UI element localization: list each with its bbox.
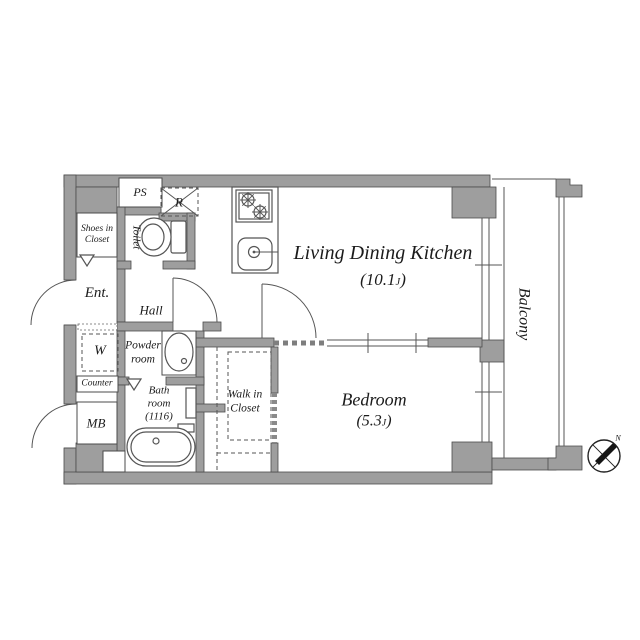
ldk-area-suffix: ) (400, 270, 406, 289)
label-washer: W (94, 344, 106, 361)
sliding-door-ldk-bedroom (274, 333, 428, 353)
wic-line2: Closet (228, 402, 262, 416)
room-label-powder: Powderroom (125, 339, 161, 366)
room-label-balcony: Balcony (514, 288, 533, 340)
room-label-walk-in-closet: Walk inCloset (228, 388, 262, 415)
shoes-closet-step-marker (80, 255, 94, 266)
bath-line1: Bath (145, 385, 173, 398)
powder-sink-icon (165, 333, 193, 371)
window-ldk (475, 218, 502, 340)
floorplan-canvas: Living Dining Kitchen (10.1J) Bedroom (5… (0, 0, 640, 640)
bedroom-area-prefix: (5.3 (356, 413, 381, 430)
meter-box-door-arc (32, 404, 76, 448)
shoes-closet-line2: Closet (81, 235, 113, 246)
label-pipe-space: PS (133, 185, 146, 199)
kitchen-stove-icon (236, 190, 272, 222)
entrance-sill (78, 324, 117, 330)
powder-line1: Powder (125, 339, 161, 353)
room-label-bedroom: Bedroom (341, 389, 406, 410)
wic-line1: Walk in (228, 388, 262, 402)
label-counter: Counter (81, 378, 112, 389)
bath-line3: (1116) (145, 410, 173, 423)
room-area-ldk: (10.1J) (360, 270, 406, 290)
window-bedroom (475, 362, 502, 442)
entrance-door-arc (31, 280, 76, 325)
room-label-bath: Bathroom(1116) (145, 385, 173, 424)
floorplan-drawing (0, 0, 640, 640)
label-refrigerator: R (175, 194, 183, 209)
room-label-shoes-in-closet: Shoes inCloset (81, 224, 113, 246)
powder-room-door-arc (173, 278, 217, 322)
label-meter-box: MB (87, 415, 106, 430)
bath-step-niche (103, 451, 125, 472)
compass-north-label: N (615, 433, 620, 442)
shoes-closet-line1: Shoes in (81, 224, 113, 235)
kitchen-sink-icon (238, 238, 278, 270)
ldk-area-prefix: (10.1 (360, 270, 395, 289)
ldk-door-arc (262, 284, 316, 338)
bedroom-area-suffix: ) (386, 413, 391, 430)
room-label-ldk: Living Dining Kitchen (294, 242, 473, 266)
room-area-bedroom: (5.3J) (356, 413, 391, 432)
room-label-hall: Hall (139, 302, 162, 317)
compass-icon (588, 440, 620, 472)
room-label-entrance: Ent. (85, 285, 110, 303)
room-label-toilet: Toilet (130, 225, 143, 250)
bath-line2: room (145, 398, 173, 411)
powder-line2: room (125, 353, 161, 367)
toilet-icon (137, 218, 186, 256)
